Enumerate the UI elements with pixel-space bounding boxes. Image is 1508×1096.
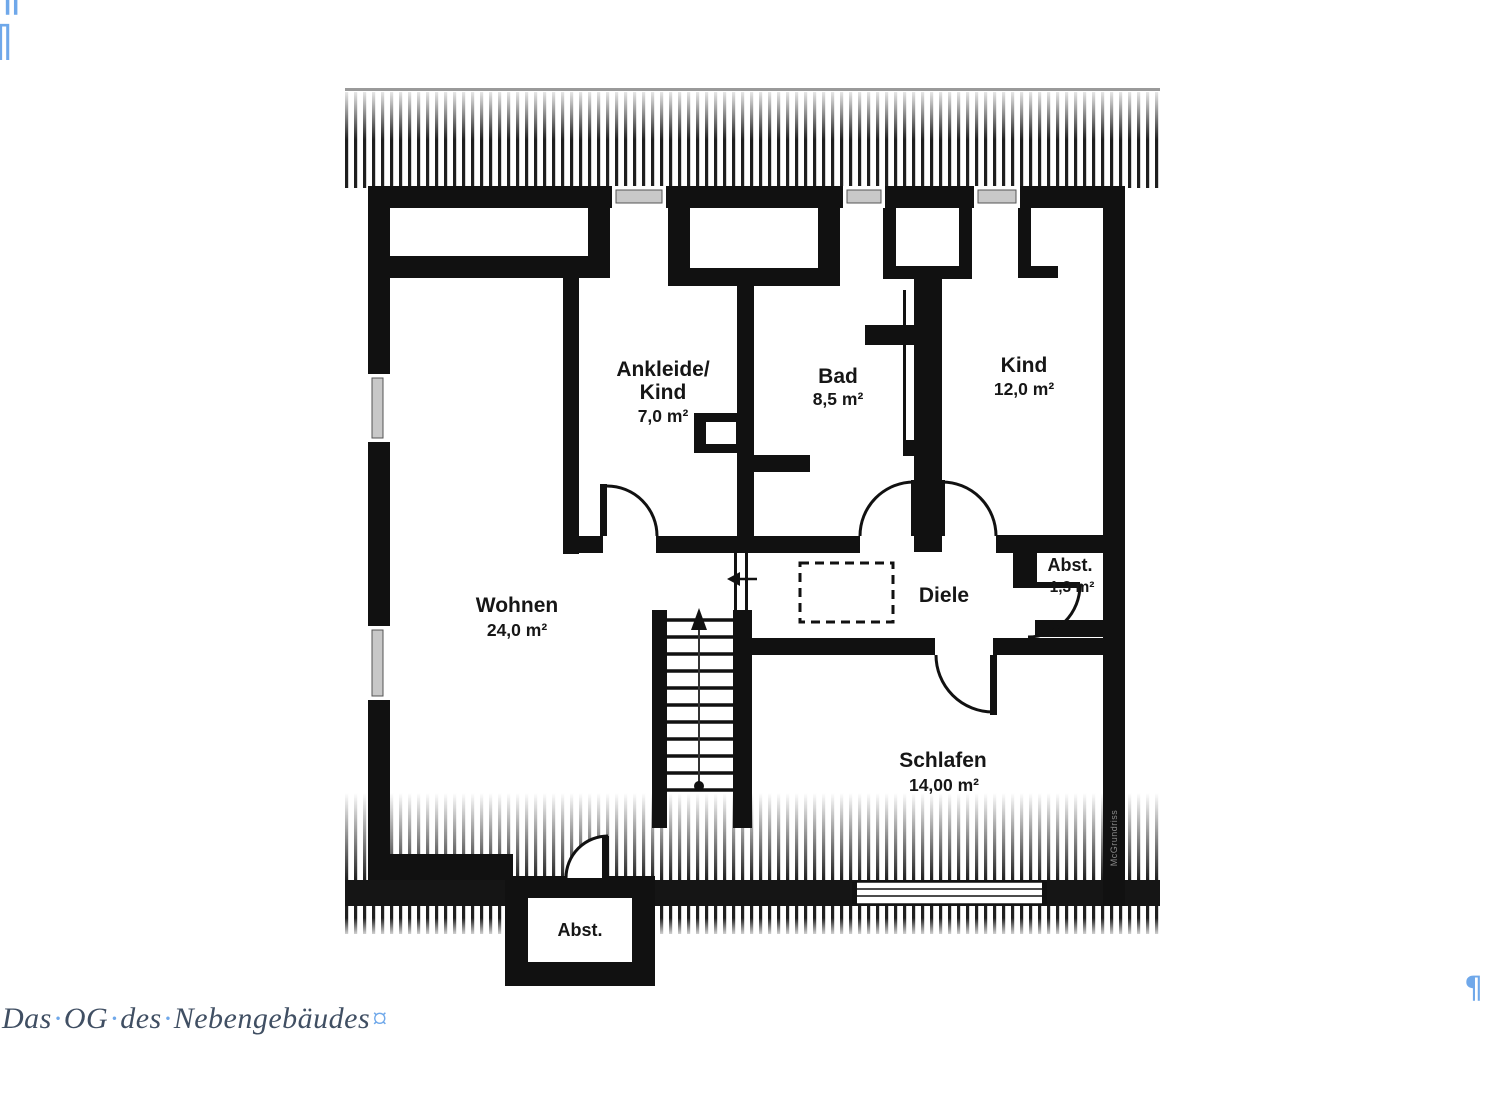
room-area-kind: 12,0 m² xyxy=(994,379,1054,399)
room-area-wohnen: 24,0 m² xyxy=(487,620,547,640)
space-mark: · xyxy=(52,1002,64,1035)
room-area-schlafen: 14,00 m² xyxy=(909,775,979,795)
door-arc-kind xyxy=(939,480,996,536)
door-arc-schlafen xyxy=(936,655,997,715)
room-label-abstellraum-og: Abst. xyxy=(1048,555,1093,575)
room-label-ankleide: Ankleide/ xyxy=(616,358,710,381)
caption-word: Das xyxy=(2,1002,52,1035)
stair-exit-arrow xyxy=(727,572,740,586)
roof-hatching-top xyxy=(345,88,1160,188)
room-label-wohnen: Wohnen xyxy=(476,594,558,617)
space-mark: · xyxy=(108,1002,120,1035)
end-of-cell-mark: ¤ xyxy=(370,1002,390,1035)
door-arc-ankleide xyxy=(600,484,657,536)
space-mark: · xyxy=(162,1002,174,1035)
caption-word: des xyxy=(120,1002,162,1035)
pilcrow-mark-icon: ¶ xyxy=(1464,974,1483,1004)
room-label-bad: Bad xyxy=(818,365,858,388)
room-label-schlafen: Schlafen xyxy=(899,749,987,772)
room-label-abstellraum-unten: Abst. xyxy=(558,920,603,940)
document-page: ¶ ¶ xyxy=(0,0,1508,1096)
door-arc-bad xyxy=(860,480,917,536)
room-label-kind: Kind xyxy=(1001,354,1048,377)
room-area-ankleide: 7,0 m² xyxy=(638,406,689,426)
caption-line[interactable]: Das·OG·des·Nebengebäudes¤ xyxy=(2,1002,390,1036)
skylight-dashed-outline xyxy=(800,563,893,622)
caption-word: Nebengebäudes xyxy=(174,1002,370,1035)
room-area-abstellraum-og: 1,3 m² xyxy=(1050,579,1095,596)
room-label-ankleide-line2: Kind xyxy=(640,381,687,404)
caption-word: OG xyxy=(64,1002,108,1035)
room-area-bad: 8,5 m² xyxy=(813,389,864,409)
watermark: McGrundriss xyxy=(1109,810,1119,867)
room-label-diele: Diele xyxy=(919,584,969,607)
floor-plan-image[interactable]: Ankleide/ Kind 7,0 m² Bad 8,5 m² Kind 12… xyxy=(0,0,1508,1096)
